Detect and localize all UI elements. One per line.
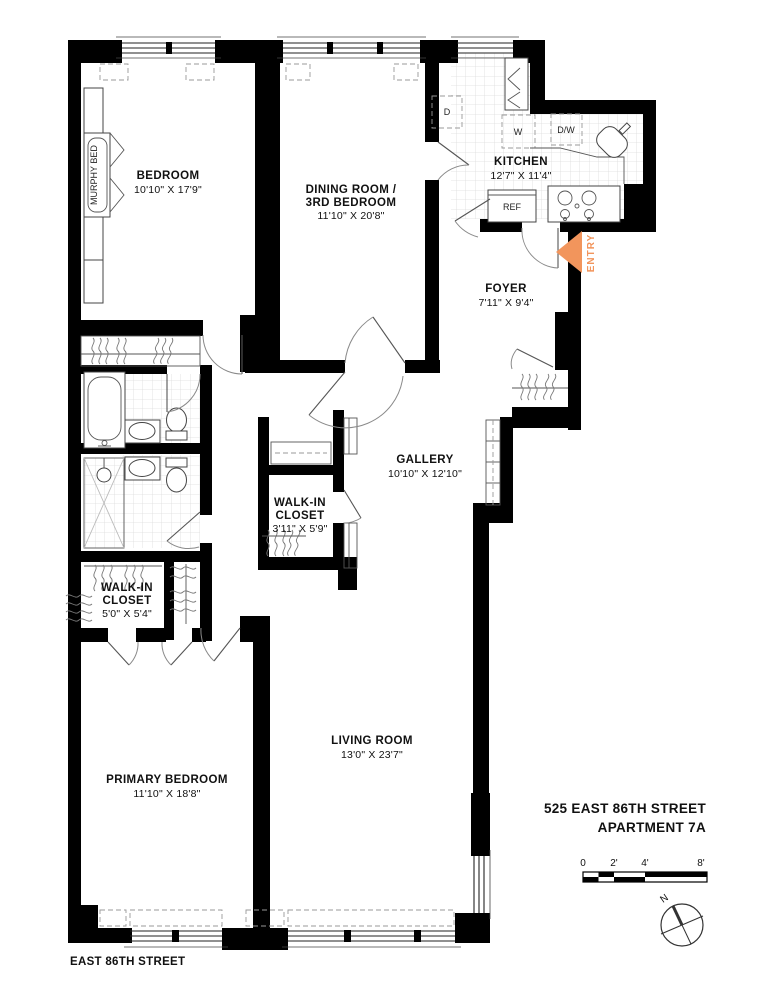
scale-tick-8: 8' [697, 858, 705, 869]
plan-title-line2: APARTMENT 7A [598, 820, 706, 835]
scale-bar: 0 2' 4' 8' [580, 858, 707, 882]
dryer-label: D [444, 107, 451, 117]
title-block: 525 EAST 86TH STREET APARTMENT 7A [544, 801, 707, 835]
room-label-wic-left: WALK-IN [101, 582, 153, 594]
stove [548, 186, 620, 222]
foyer-closet [512, 374, 568, 400]
scale-tick-0: 0 [580, 858, 586, 869]
room-label-wic-left-2: CLOSET [102, 595, 151, 607]
plan-title-line1: 525 EAST 86TH STREET [544, 801, 707, 816]
room-label-wic-center-2: CLOSET [275, 510, 324, 522]
room-label-foyer: FOYER [485, 283, 527, 295]
vestibule-dresser [271, 442, 331, 464]
entry-label: ENTRY [586, 234, 597, 273]
room-label-primary: PRIMARY BEDROOM [106, 774, 228, 786]
room-dims-primary: 11'10" X 18'8" [133, 788, 200, 800]
room-dims-wic-center: 3'11" X 5'9" [272, 523, 327, 535]
room-label-dining: DINING ROOM / [306, 184, 397, 196]
room-label-wic-center: WALK-IN [274, 497, 326, 509]
room-label-bedroom: BEDROOM [137, 170, 200, 182]
room-label-gallery: GALLERY [396, 454, 453, 466]
refrigerator-label: REF [503, 202, 522, 212]
bedroom-closet [81, 336, 200, 366]
room-label-living: LIVING ROOM [331, 735, 413, 747]
entry-marker: ENTRY [556, 231, 597, 273]
room-label-kitchen: KITCHEN [494, 156, 548, 168]
scale-tick-2: 2' [610, 858, 618, 869]
murphy-bed-label: MURPHY BED [89, 145, 99, 205]
floor-plan-page: ENTRY BEDROOM 10'10" X 17'9" DINING ROOM… [0, 0, 773, 1000]
washer-label: W [514, 127, 523, 137]
room-dims-wic-left: 5'0" X 5'4" [102, 608, 152, 620]
compass-north-label: N [658, 892, 670, 905]
room-dims-living: 13'0" X 23'7" [341, 749, 403, 761]
scale-tick-4: 4' [641, 858, 649, 869]
compass: N [658, 892, 703, 946]
floor-plan: ENTRY BEDROOM 10'10" X 17'9" DINING ROOM… [0, 0, 773, 1000]
room-dims-bedroom: 10'10" X 17'9" [134, 184, 202, 196]
room-dims-dining: 11'10" X 20'8" [317, 210, 384, 222]
room-label-dining-2: 3RD BEDROOM [306, 197, 397, 209]
room-dims-gallery: 10'10" X 12'10" [388, 468, 462, 480]
street-label: EAST 86TH STREET [70, 956, 185, 968]
room-dims-kitchen: 12'7" X 11'4" [490, 170, 551, 182]
dishwasher-label: D/W [557, 125, 575, 135]
room-dims-foyer: 7'11" X 9'4" [478, 297, 533, 309]
